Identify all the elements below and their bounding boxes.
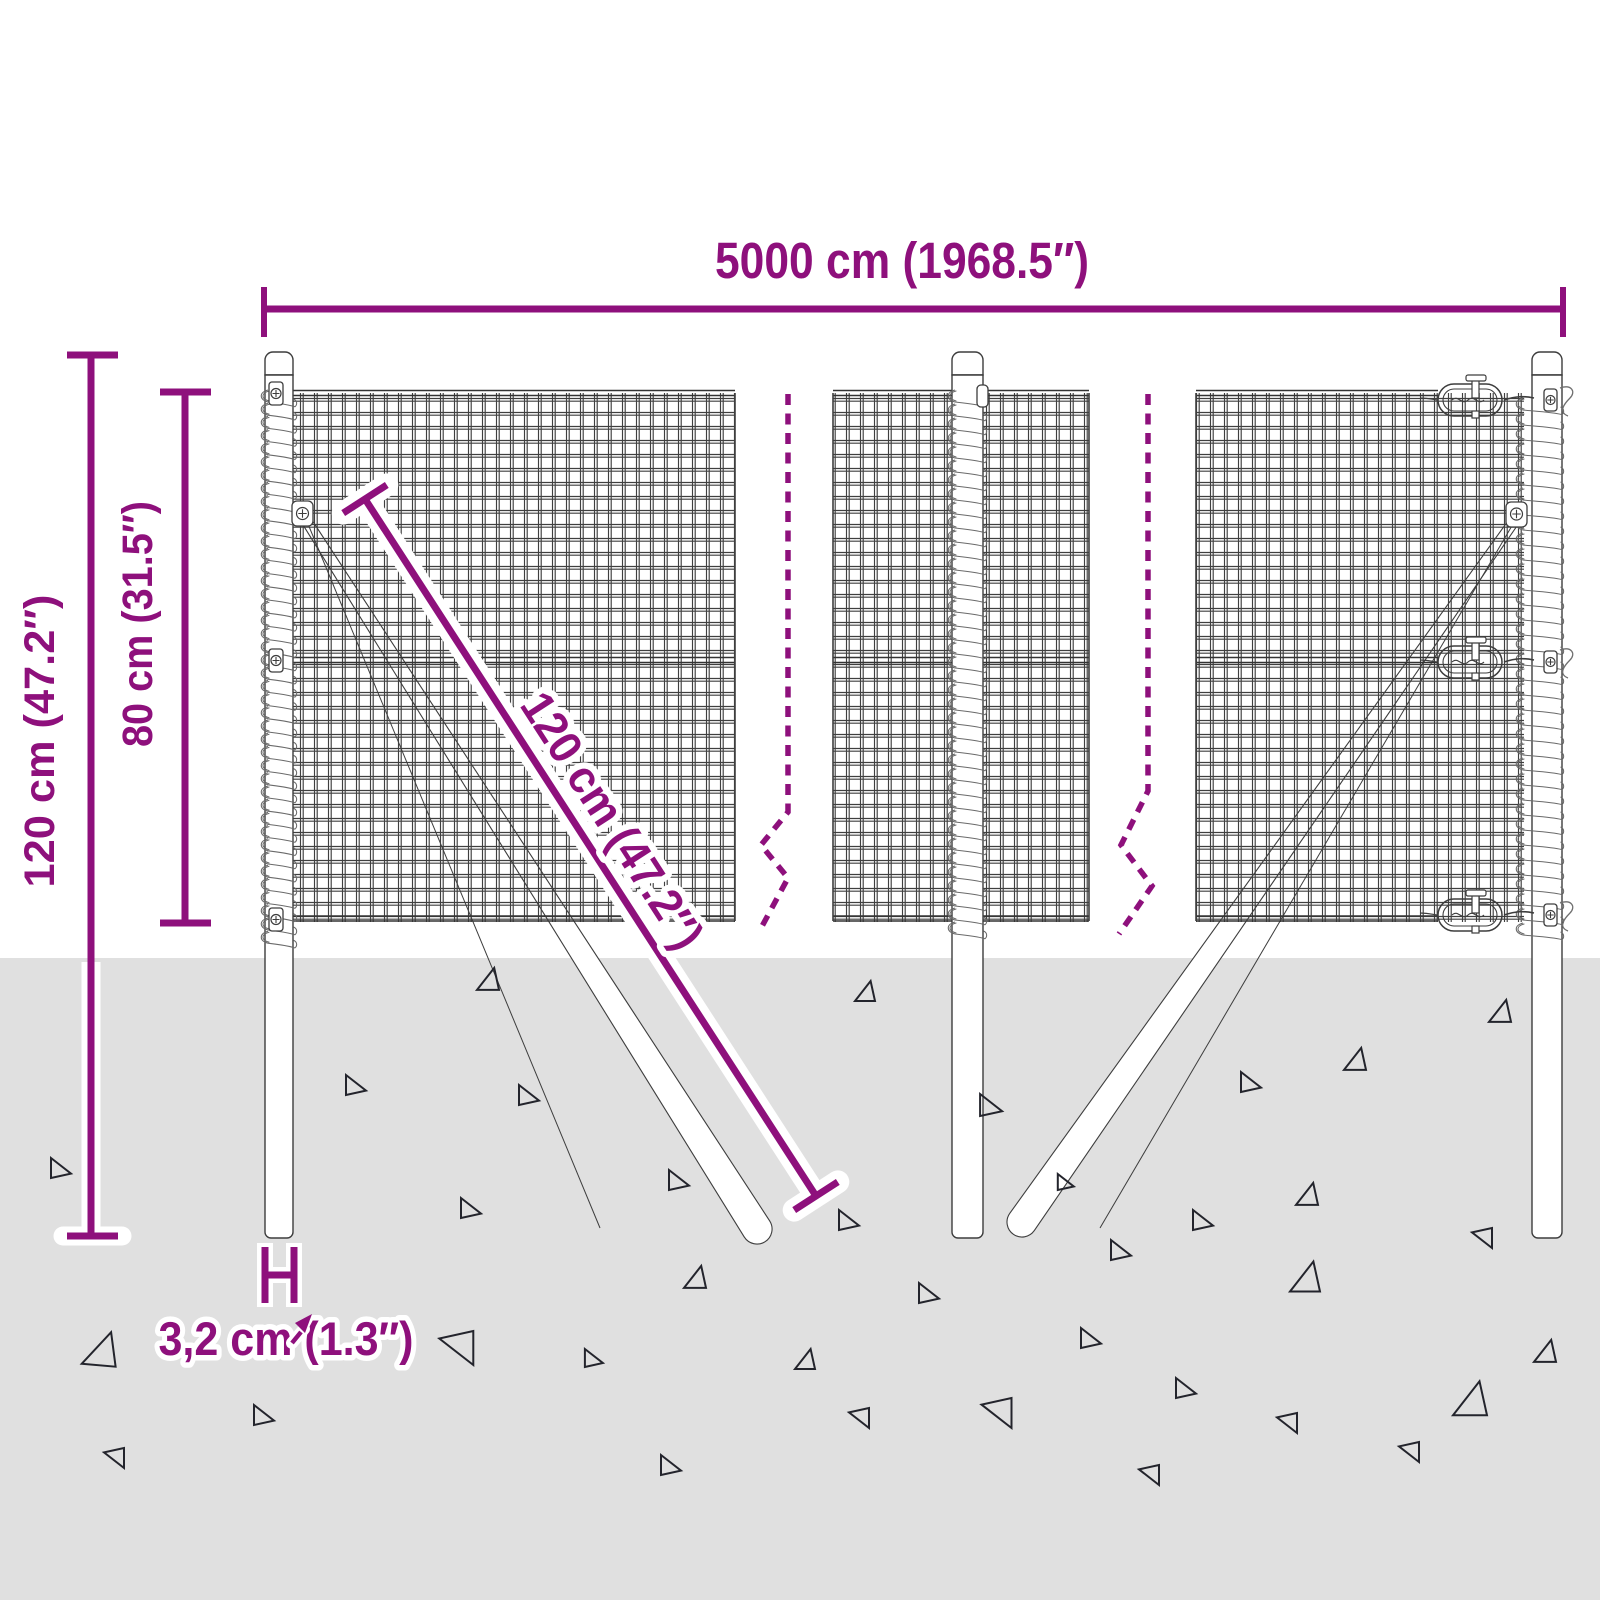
svg-text:120 cm (47.2″): 120 cm (47.2″) [16, 595, 64, 888]
svg-text:80 cm (31.5″): 80 cm (31.5″) [114, 501, 162, 747]
svg-text:3,2 cm (1.3″): 3,2 cm (1.3″) [159, 1312, 414, 1365]
svg-text:5000 cm (1968.5″): 5000 cm (1968.5″) [715, 232, 1089, 289]
